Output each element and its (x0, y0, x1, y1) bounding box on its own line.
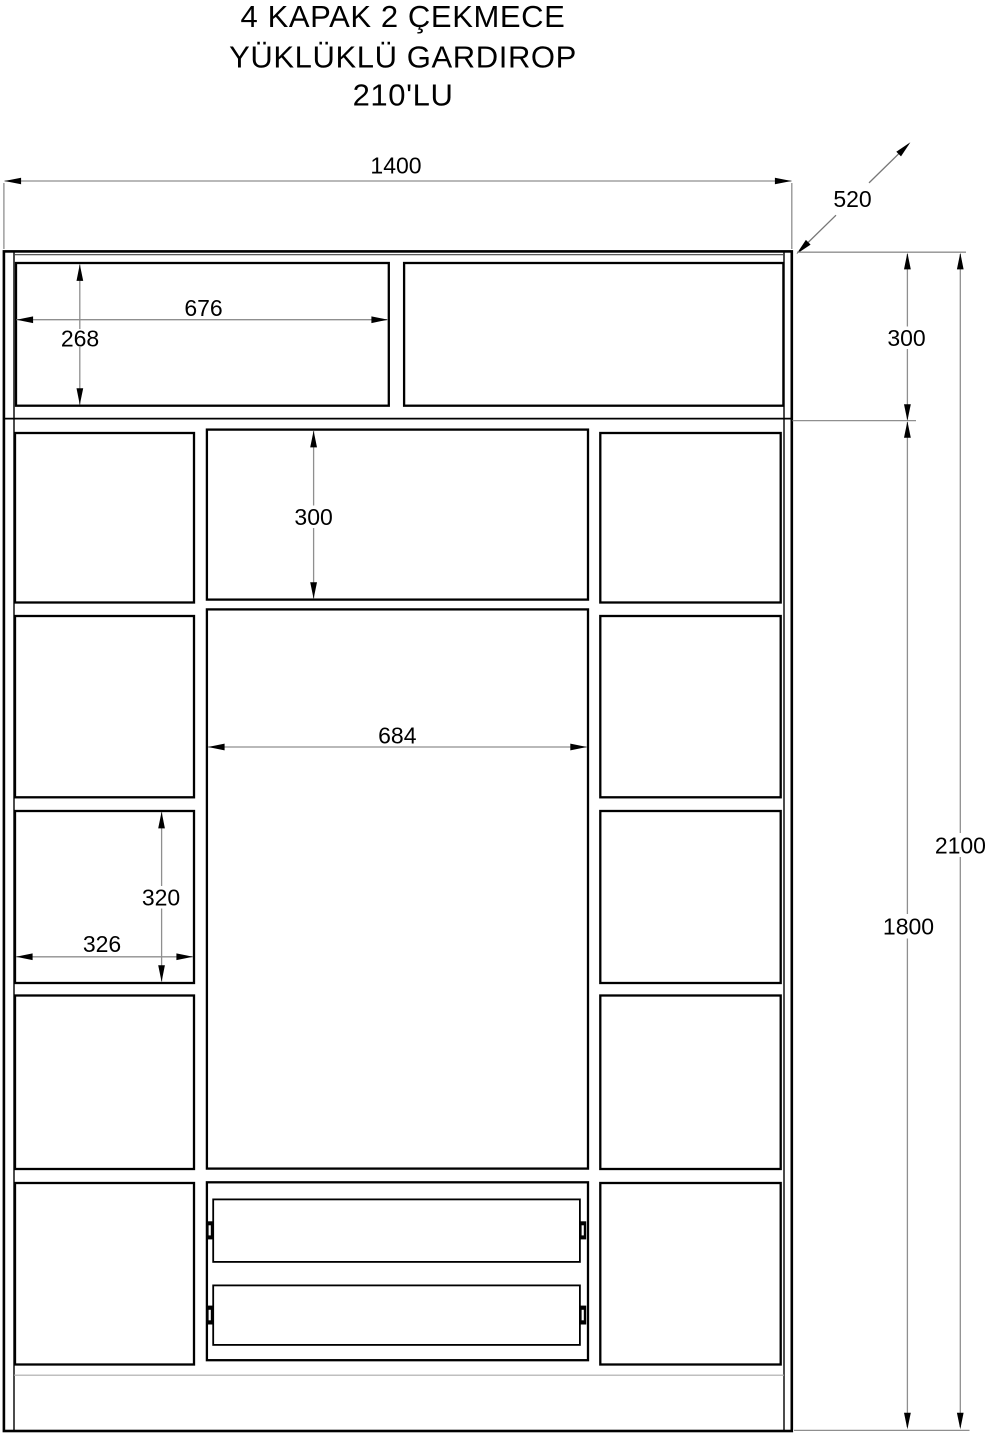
svg-text:4 KAPAK 2 ÇEKMECE: 4 KAPAK 2 ÇEKMECE (241, 0, 566, 34)
svg-text:320: 320 (142, 885, 180, 911)
svg-text:684: 684 (378, 723, 417, 749)
svg-text:YÜKLÜKLÜ GARDIROP: YÜKLÜKLÜ GARDIROP (229, 39, 577, 74)
svg-text:300: 300 (294, 504, 332, 530)
svg-text:1400: 1400 (370, 153, 421, 179)
svg-text:300: 300 (887, 325, 925, 351)
svg-text:676: 676 (184, 295, 222, 321)
svg-text:326: 326 (83, 931, 121, 957)
svg-text:210'LU: 210'LU (353, 77, 454, 112)
svg-text:2100: 2100 (935, 832, 986, 858)
svg-text:268: 268 (61, 325, 99, 351)
svg-text:520: 520 (833, 186, 871, 212)
svg-text:1800: 1800 (883, 913, 934, 939)
